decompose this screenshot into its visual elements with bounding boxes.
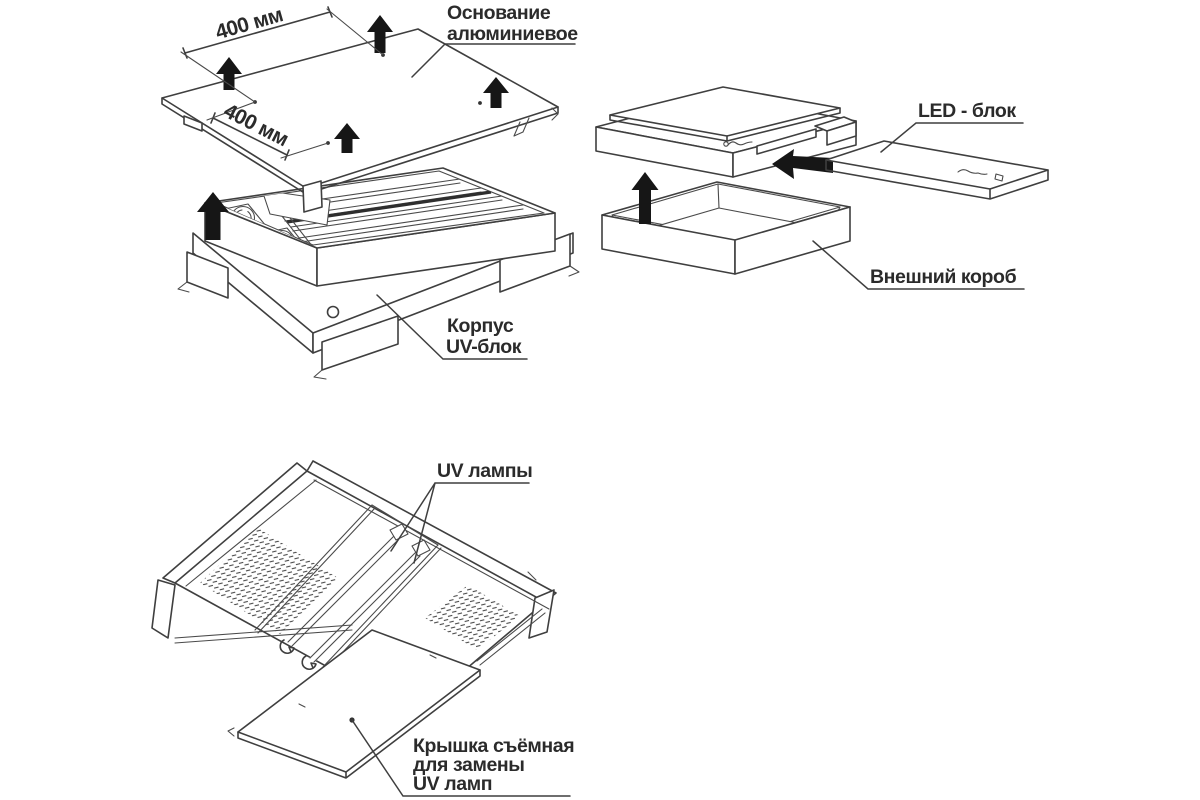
diagram-page: 400 мм 400 мм Основание алюминиевое Корп… (0, 0, 1200, 800)
dimension-text: 400 мм (213, 3, 286, 44)
label-text: LED - блок (918, 100, 1016, 122)
outer-box (602, 172, 850, 274)
label-text: UV-блок (446, 336, 522, 358)
uv-lamps-underside-diagram: UV лампы Крышка съёмная для замены UV ла… (152, 460, 574, 796)
label-outer-box: Внешний короб (813, 241, 1024, 289)
label-text: Основание (447, 2, 551, 24)
plate-corner-tab (303, 181, 322, 212)
label-text: алюминиевое (447, 23, 578, 45)
left-skirt (152, 580, 175, 638)
housing-hole (328, 307, 339, 318)
uv-block-exploded-diagram: 400 мм 400 мм Основание алюминиевое Корп… (162, 2, 579, 379)
label-text: Корпус (447, 315, 514, 337)
label-text: UV лампы (437, 460, 532, 482)
led-module (826, 141, 1048, 199)
led-assembly-diagram: LED - блок Внешний короб (596, 87, 1048, 289)
label-text: Внешний короб (870, 266, 1017, 288)
label-text: UV ламп (413, 773, 492, 795)
assembled-unit (596, 87, 856, 179)
